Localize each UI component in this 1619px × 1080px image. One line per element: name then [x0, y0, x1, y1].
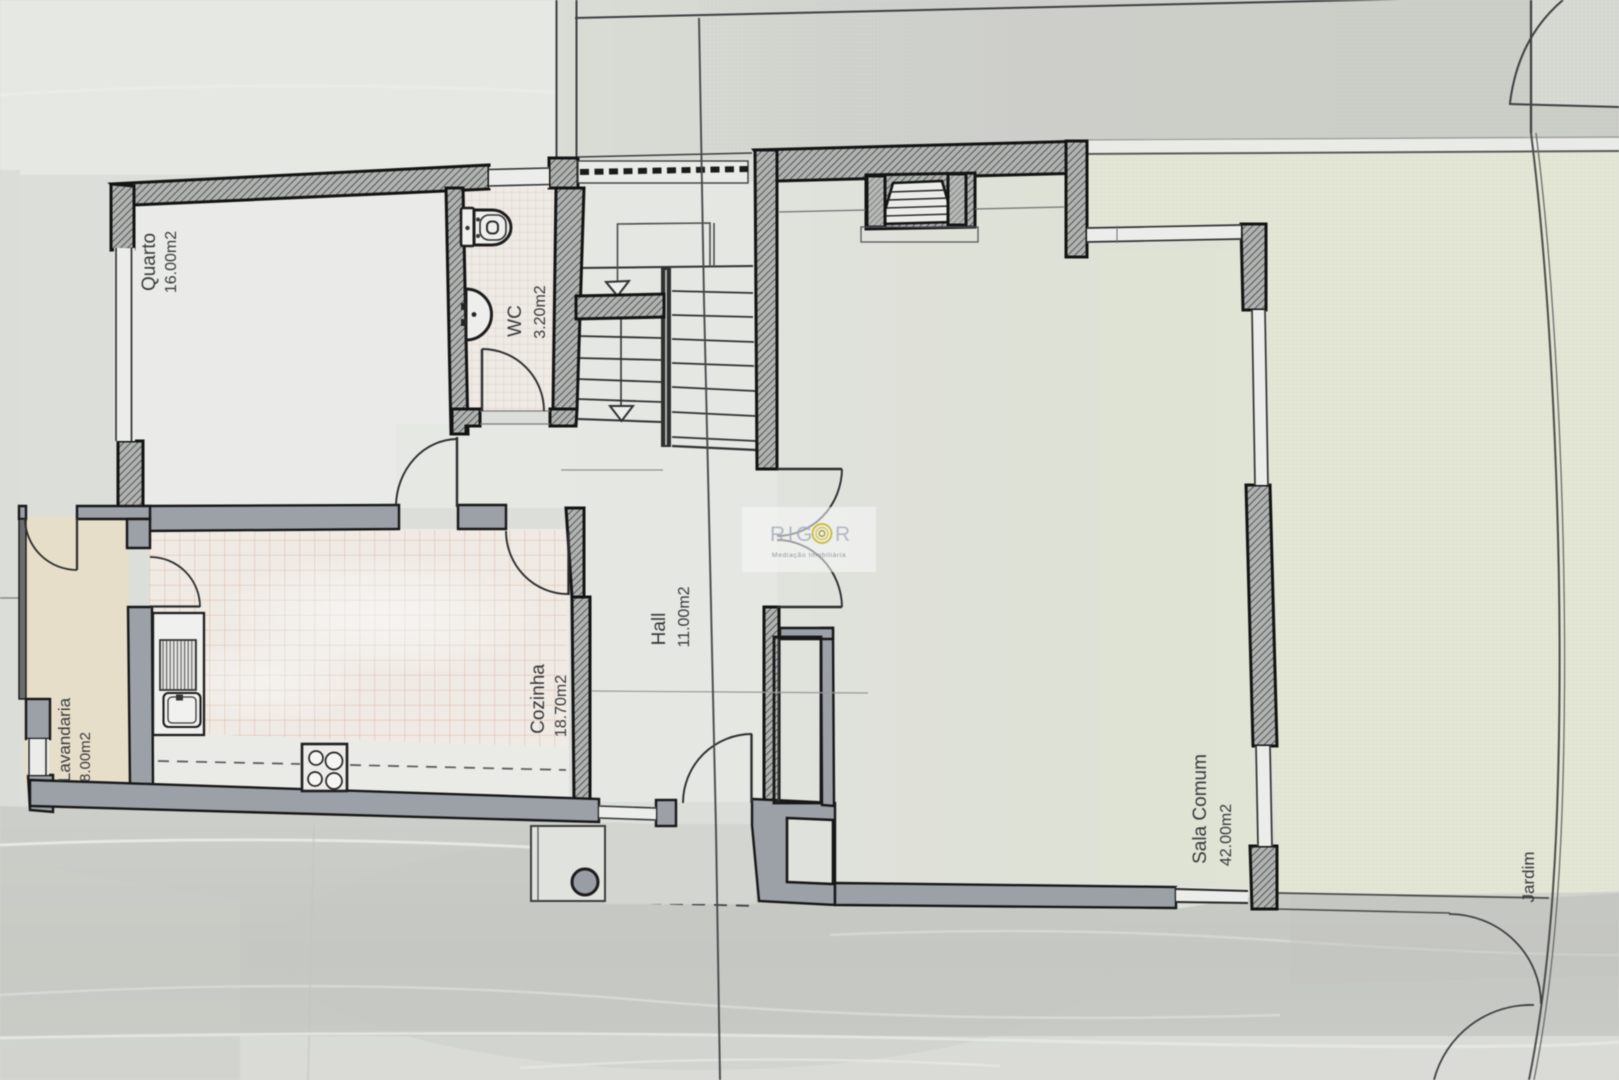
svg-text:WC: WC [505, 305, 526, 337]
svg-text:Lavandaria: Lavandaria [55, 697, 74, 782]
svg-text:11.00m2: 11.00m2 [676, 586, 693, 647]
svg-text:Mediação Imobiliária: Mediação Imobiliária [772, 552, 846, 559]
svg-text:16.00m2: 16.00m2 [163, 231, 180, 293]
svg-text:R: R [835, 523, 850, 546]
svg-text:3.20m2: 3.20m2 [532, 285, 549, 338]
svg-text:Quarto: Quarto [139, 233, 160, 291]
svg-text:Cozinha: Cozinha [528, 664, 549, 734]
svg-text:8.00m2: 8.00m2 [77, 732, 94, 782]
svg-text:Hall: Hall [649, 613, 670, 646]
svg-text:42.00m2: 42.00m2 [1218, 804, 1235, 866]
svg-text:RIG: RIG [770, 523, 815, 546]
svg-text:18.70m2: 18.70m2 [553, 675, 570, 737]
svg-text:Jardim: Jardim [1519, 851, 1538, 902]
svg-text:Sala Comum: Sala Comum [1190, 754, 1211, 864]
